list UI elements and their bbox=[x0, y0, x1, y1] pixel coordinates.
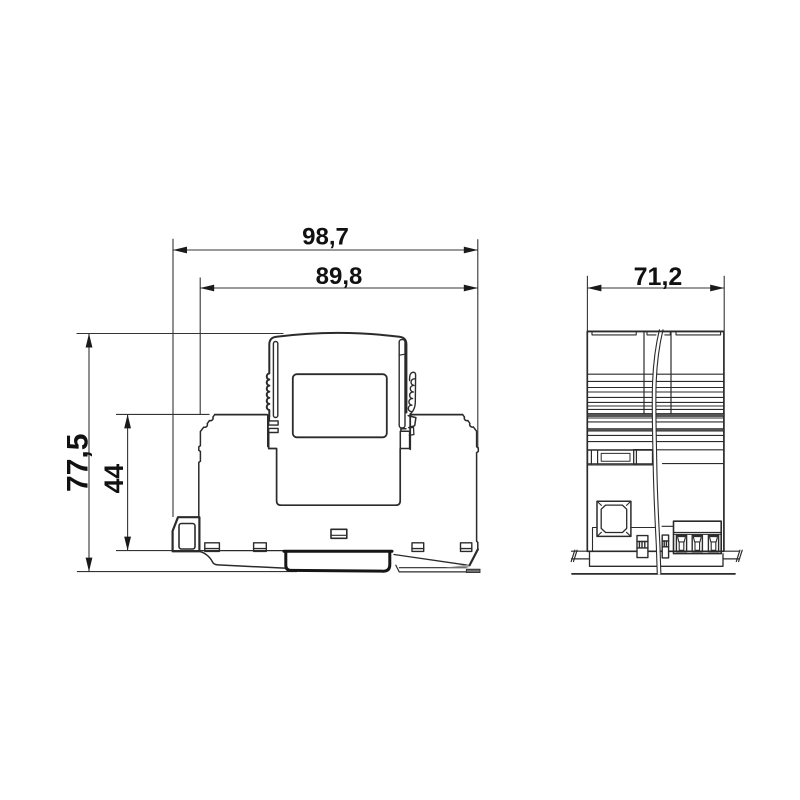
svg-text:98,7: 98,7 bbox=[302, 223, 349, 250]
svg-text:89,8: 89,8 bbox=[316, 263, 363, 290]
svg-text:71,2: 71,2 bbox=[634, 263, 683, 291]
svg-text:77,5: 77,5 bbox=[61, 434, 94, 492]
svg-text:44: 44 bbox=[99, 464, 129, 494]
